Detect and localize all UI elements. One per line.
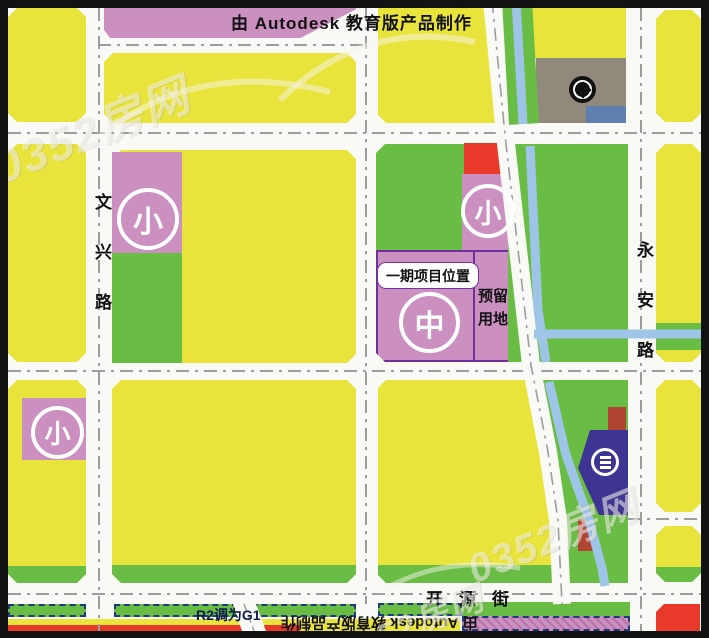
reserved-line2: 用地: [478, 308, 508, 331]
elementary-school-marker: 小: [461, 184, 515, 238]
phase1-label-box: 一期项目位置: [377, 262, 479, 289]
school-marker-label: 中: [415, 301, 445, 345]
middle-school-marker: 中: [399, 292, 460, 353]
reserved-line1: 预留: [478, 285, 508, 308]
school-marker-label: 小: [475, 192, 502, 231]
map-border-top: [0, 0, 709, 8]
civic-facility-icon-bars: [600, 461, 611, 464]
gas-station-icon: [569, 76, 596, 103]
civic-facility-icon: [591, 448, 619, 476]
gas-station-icon-diamond: [574, 81, 591, 98]
road-label-kaiyuan: 开源街: [426, 585, 525, 610]
school-marker-label: 小: [133, 197, 163, 241]
school-marker-label: 小: [44, 414, 70, 451]
gas-station-icon-ring: [573, 80, 592, 99]
phase1-label: 一期项目位置: [386, 266, 470, 286]
reserved-land-label: 预留 用地: [478, 285, 508, 331]
rezone-note: R2调为G1: [196, 605, 261, 625]
elementary-school-marker: 小: [117, 188, 179, 250]
road-label-wenxing: 文兴路: [89, 193, 114, 343]
road-label-yongan: 永安路: [631, 241, 656, 391]
zoning-map: 小 小 小 中 由 Autodesk 教育版产品制作 文兴路 永安路 开源街 一…: [0, 0, 709, 638]
map-border-left: [0, 0, 8, 638]
autodesk-banner-top: 由 Autodesk 教育版产品制作: [231, 9, 472, 34]
map-border-bottom: [0, 631, 709, 638]
map-border-right: [701, 0, 709, 638]
elementary-school-marker: 小: [31, 406, 84, 459]
